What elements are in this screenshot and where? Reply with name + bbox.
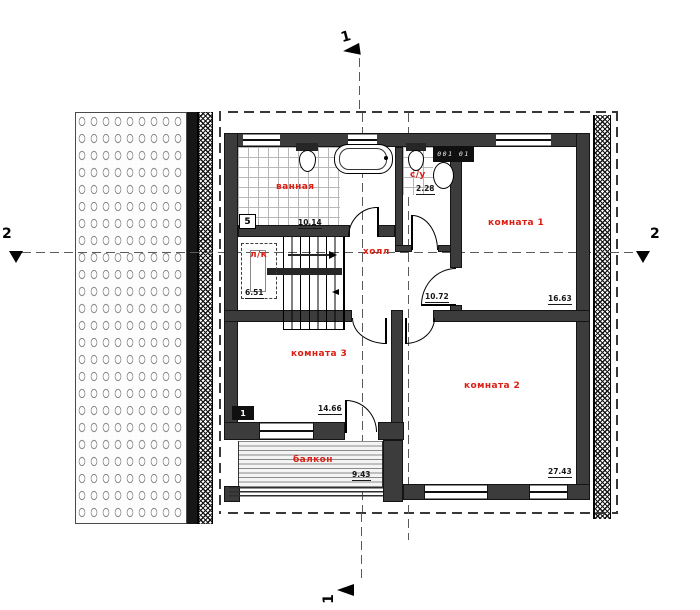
bathroom-door-arc xyxy=(348,207,377,237)
section-arrow-2-right xyxy=(636,251,650,263)
window-room2-bottom-1 xyxy=(425,484,487,500)
bathtub-faucet-icon xyxy=(384,156,388,160)
area-label-room1: 16.63 xyxy=(548,294,572,305)
wall-hall-room1 xyxy=(450,147,462,268)
facade-cell-hatch xyxy=(75,112,187,524)
window-top-1 xyxy=(243,133,280,147)
room-label-balcony: балкон xyxy=(293,455,333,465)
wall-room1-room2 xyxy=(433,310,590,322)
window-room3-balcony xyxy=(260,422,313,440)
room-label-room1: комната 1 xyxy=(488,218,544,228)
window-top-3 xyxy=(496,133,551,147)
section-marker-1-bottom: 1 xyxy=(321,594,337,604)
section-line-1-bottom-seg xyxy=(361,513,362,581)
room-label-hall: холл xyxy=(363,247,390,257)
stairs-handrail xyxy=(267,268,342,275)
room-label-room2: комната 2 xyxy=(464,381,520,391)
balcony-rail xyxy=(229,487,383,497)
room-label-bathroom: ванная xyxy=(276,182,314,192)
area-label-hall: 10.72 xyxy=(425,292,449,303)
area-label-room3: 14.66 xyxy=(318,404,342,415)
section-arrow-1-top xyxy=(342,43,361,57)
room-label-wc: с/у xyxy=(410,170,426,180)
window-room2-bottom-2 xyxy=(530,484,567,500)
room3-door-arc xyxy=(352,318,386,344)
section-marker-2-right: 2 xyxy=(650,226,660,242)
stairs-up-arrow-icon xyxy=(329,251,337,259)
wall-room3-room2 xyxy=(391,310,403,440)
balcony-door-arc xyxy=(346,400,377,432)
wc-door-arc xyxy=(412,215,438,250)
bathtub-inner-icon xyxy=(339,148,387,170)
wall-wc-bottom-a xyxy=(395,245,412,252)
overhang-dash-right xyxy=(616,111,618,514)
wall-left xyxy=(224,133,238,440)
balcony-post-right xyxy=(383,440,403,502)
room-label-room3: комната 3 xyxy=(291,349,347,359)
insulation-strip xyxy=(187,112,197,524)
wall-room3-balcony-a xyxy=(224,422,260,440)
bathroom-door-tag: 5 xyxy=(239,214,256,229)
wall-room2-bottom-c xyxy=(567,484,590,500)
vent-duct-tag: 001 01 xyxy=(433,146,474,162)
stairs-direction-line xyxy=(288,254,330,256)
stairs-down-arrow-icon xyxy=(332,289,339,295)
area-label-balcony: 9.43 xyxy=(352,470,371,481)
section-line-1-top-seg xyxy=(359,58,360,112)
room-label-stair: л/к xyxy=(250,250,267,260)
section-arrow-2-left xyxy=(9,251,23,263)
area-label-room2: 27.43 xyxy=(548,467,572,478)
wall-bathroom-wc xyxy=(395,147,403,252)
room2-door-arc xyxy=(405,318,435,344)
overhang-dash-bottom xyxy=(228,512,618,514)
area-label-stair: 6.51 xyxy=(245,288,264,299)
wall-room2-bottom-b xyxy=(487,484,530,500)
overhang-dash-top xyxy=(228,111,618,113)
balcony-door-tag: 1 xyxy=(232,406,254,420)
area-label-bathroom: 10.14 xyxy=(298,218,322,229)
section-arrow-1-bottom xyxy=(337,584,354,596)
bathroom-door-leaf xyxy=(377,207,379,237)
wall-bathroom-bottom-stub xyxy=(378,225,395,237)
crosshatch-strip-right xyxy=(593,115,611,519)
wall-room2-bottom-a xyxy=(403,484,425,500)
floor-plan: 1 1 2 2 xyxy=(0,0,700,610)
area-label-wc: 2.28 xyxy=(416,184,435,195)
crosshatch-strip-left xyxy=(197,112,213,524)
section-marker-2-left: 2 xyxy=(2,226,12,242)
wall-room3-balcony-b xyxy=(313,422,345,440)
overhang-dash-left xyxy=(219,111,221,514)
sink-wc-icon xyxy=(433,162,454,189)
wall-room3-balcony-c xyxy=(378,422,404,440)
